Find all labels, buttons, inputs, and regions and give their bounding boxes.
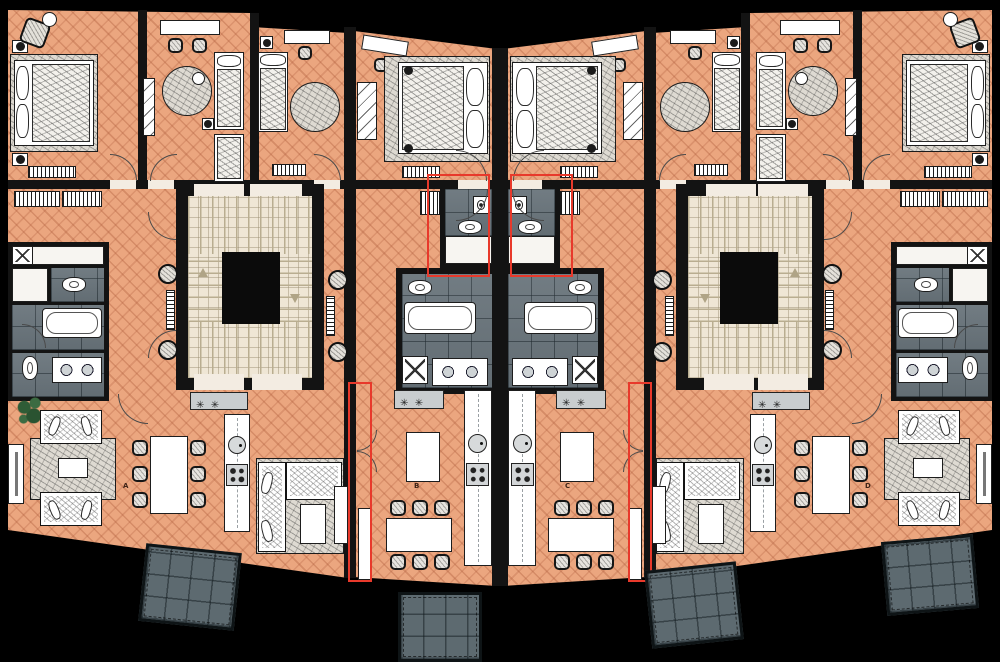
chair-icon [132,466,148,482]
table-lamp-icon [975,155,984,164]
hall-closet-icon [900,191,940,207]
double-washbasin-icon [512,358,568,386]
shower-room-a [12,268,48,302]
dining-table-icon [548,518,614,552]
radiator-icon [924,166,972,178]
kitchen-wall-units-fan-icon [556,390,606,409]
pillow-icon [516,110,534,148]
door-opening [250,184,302,196]
chair-icon [132,492,148,508]
door-opening [194,184,244,196]
entry-sideboard-icon [334,486,348,544]
balcony-apartment-a [138,543,242,631]
radiator-icon [694,164,728,176]
chair-icon [794,466,810,482]
chair-icon [852,440,868,456]
east-elevator-shaft [720,252,778,324]
hall-closet-icon [14,191,60,207]
west-stair-landing-left [188,254,222,322]
door-opening [252,374,302,390]
kitchen-island-icon [406,432,440,482]
chair-icon [598,500,614,516]
sink-icon [513,434,532,453]
pillow-icon [971,104,984,138]
pouf-icon [328,342,348,362]
desk-icon [284,30,330,44]
stair-arrow-icon [198,268,208,277]
door-opening [110,180,136,189]
toilet-icon [22,356,38,380]
bed-duvet [759,137,783,179]
chair-icon [688,46,702,60]
pillow-icon [516,68,534,106]
radiator-icon [665,296,674,336]
bathtub-icon [404,302,476,334]
chair-icon [412,554,428,570]
highlight-utility-room-b [427,174,490,277]
table-lamp-icon [16,42,25,51]
chair-icon [190,466,206,482]
wardrobe-icon [623,82,643,140]
bed-duvet [759,69,783,127]
party-wall-b-c [492,48,508,586]
pillow-icon [217,55,241,67]
door-opening [758,184,808,196]
bed-duvet [217,137,241,179]
floor-lamp-icon [943,12,958,27]
floor-lamp-icon [42,12,57,27]
west-stair-treads-top [188,196,312,254]
bathtub-icon [898,308,958,338]
kitchen-wall-units-fan-icon [190,392,248,410]
round-rug-icon [660,82,710,132]
washing-machine-icon [402,356,428,384]
chair-icon [576,500,592,516]
east-stair-landing-right [778,254,812,322]
apartment-label: D [865,482,871,490]
washing-machine-icon [967,246,988,265]
tv-sideboard-icon [8,444,24,504]
bathtub-icon [42,308,102,338]
radiator-icon [825,290,834,330]
chair-icon [852,492,868,508]
bathtub-icon [524,302,596,334]
west-elevator-shaft [222,252,280,324]
wardrobe-icon [845,78,857,136]
chair-icon [794,492,810,508]
door-opening [826,180,852,189]
round-rug-icon [290,82,340,132]
pillow-icon [466,68,484,106]
highlight-entry-c-d [628,382,652,582]
radiator-icon [272,164,306,176]
dining-table-icon [386,518,452,552]
cooktop-icon [226,464,248,486]
east-stair-treads-bottom [688,322,812,378]
chair-icon [794,440,810,456]
chair-icon [434,554,450,570]
table-lamp-icon [975,42,984,51]
west-stair-treads-bottom [188,322,312,378]
door-opening [194,374,244,390]
stair-arrow-icon [290,294,300,303]
chair-icon [434,500,450,516]
desk-icon [780,20,840,35]
pouf-icon [822,264,842,284]
chair-icon [598,554,614,570]
chair-icon [817,38,832,53]
shower-room-d [952,268,988,302]
door-opening [864,180,890,189]
chair-icon [190,440,206,456]
table-lamp-icon [16,155,25,164]
chair-icon [168,38,183,53]
east-stair-landing-left [688,254,722,322]
cooktop-icon [752,464,774,486]
sink-icon [754,436,772,454]
cooktop-icon [511,463,534,486]
bed-duvet [536,66,598,150]
bed-duvet [32,64,90,142]
floor-lamp-icon [795,72,808,85]
kitchen-wall-units-fan-icon [752,392,810,410]
pillow-icon [16,66,29,100]
pillow-icon [971,66,984,100]
balcony-apartment-b [398,592,482,662]
coffee-table-icon [300,504,326,544]
bed-duvet [402,66,464,150]
chair-icon [390,500,406,516]
wardrobe-icon [143,78,155,136]
apartment-label: B [414,482,419,490]
table-lamp-icon [404,66,413,75]
bed-duvet [217,69,241,127]
toilet-icon [62,277,86,292]
toilet-icon [914,277,938,292]
table-lamp-icon [204,120,212,128]
toilet-icon [962,356,978,380]
door-opening [706,184,756,196]
east-stair-treads-top [688,196,812,254]
kitchen-wall-units-fan-icon [394,390,444,409]
sofa-icon [684,462,740,500]
dining-table-icon [150,436,188,514]
table-lamp-icon [587,144,596,153]
wardrobe-icon [357,82,377,140]
table-lamp-icon [788,120,796,128]
bed-duvet [714,68,740,130]
pouf-icon [328,270,348,290]
floor-lamp-icon [192,72,205,85]
chair-icon [132,440,148,456]
pouf-icon [652,270,672,290]
table-lamp-icon [404,144,413,153]
kitchen-island-icon [560,432,594,482]
bed-duvet [260,68,286,130]
stair-arrow-icon [790,268,800,277]
coffee-table-icon [58,458,88,478]
pouf-icon [652,342,672,362]
entry-sideboard-icon [652,486,666,544]
balcony-apartment-c [644,561,744,648]
door-opening [148,180,174,189]
table-lamp-icon [587,66,596,75]
dining-table-icon [812,436,850,514]
stair-arrow-icon [700,294,710,303]
bathroom-c-walls [598,268,604,394]
double-washbasin-icon [898,357,948,383]
chair-icon [576,554,592,570]
desk-icon [670,30,716,44]
hall-closet-icon [942,191,988,207]
apartment-label: A [123,482,128,490]
west-stair-landing-right [278,254,312,322]
hall-closet-icon [62,191,102,207]
pillow-icon [714,54,740,66]
floor-plan: A B C D [0,0,1000,662]
wall-room-divider-d2-d3 [741,13,750,185]
desk-icon [160,20,220,35]
sink-icon [228,436,246,454]
pillow-icon [260,54,286,66]
washing-machine-icon [12,246,33,265]
toilet-icon [568,280,592,295]
table-lamp-icon [263,39,271,47]
cooktop-icon [466,463,489,486]
radiator-icon [166,290,175,330]
double-washbasin-icon [432,358,488,386]
radiator-icon [326,296,335,336]
door-opening [758,374,808,390]
tv-sideboard-icon [976,444,992,504]
table-lamp-icon [730,39,738,47]
chair-icon [852,466,868,482]
chair-icon [298,46,312,60]
pillow-icon [16,104,29,138]
highlight-utility-room-c [510,174,573,277]
toilet-icon [408,280,432,295]
double-washbasin-icon [52,357,102,383]
pouf-icon [158,264,178,284]
washing-machine-icon [572,356,598,384]
chair-icon [412,500,428,516]
bed-duvet [910,64,968,142]
pillow-icon [466,110,484,148]
chair-icon [190,492,206,508]
apartment-label: C [565,482,570,490]
coffee-table-icon [698,504,724,544]
round-rug-icon [162,66,212,116]
chair-icon [554,500,570,516]
chair-icon [192,38,207,53]
pillow-icon [759,55,783,67]
highlight-entry-a-b [348,382,372,582]
door-opening [704,374,754,390]
chair-icon [793,38,808,53]
chair-icon [554,554,570,570]
chair-icon [390,554,406,570]
balcony-apartment-d [881,534,979,616]
coffee-table-icon [913,458,943,478]
sink-icon [468,434,487,453]
radiator-icon [28,166,76,178]
